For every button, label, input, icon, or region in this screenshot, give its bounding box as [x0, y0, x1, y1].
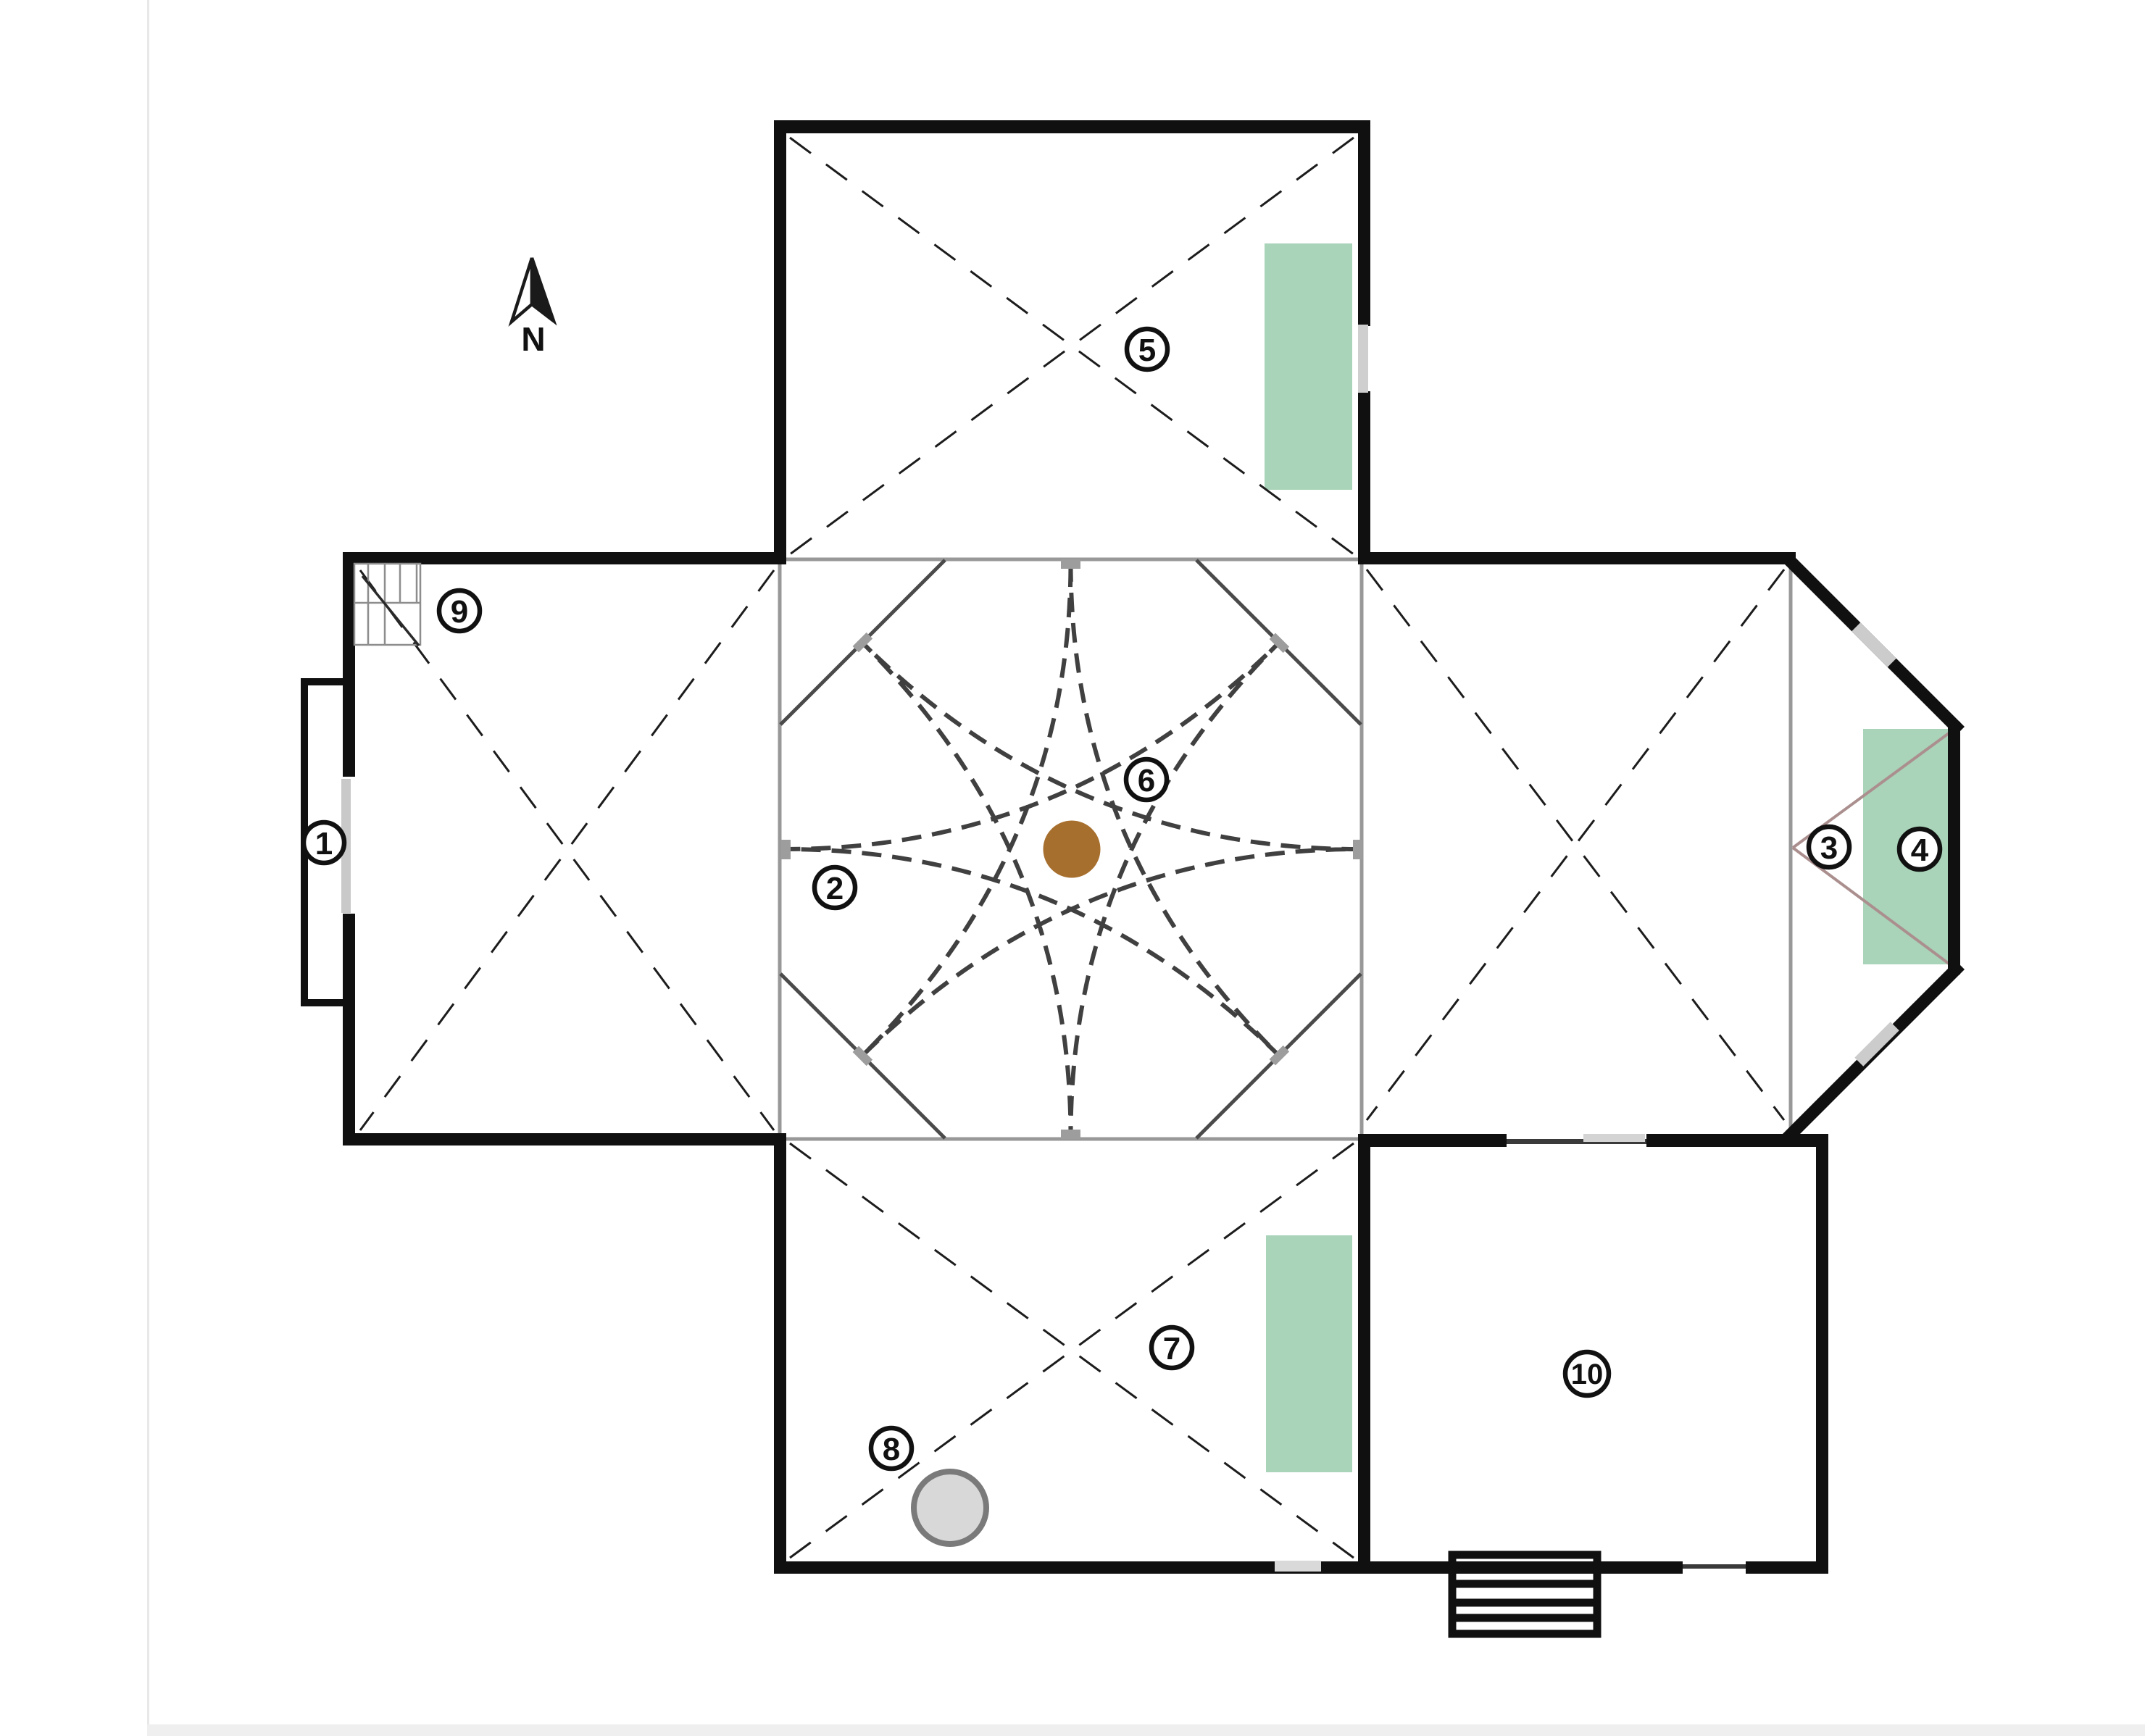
svg-text:1: 1 [315, 826, 333, 861]
svg-text:9: 9 [451, 594, 468, 630]
svg-text:8: 8 [883, 1432, 900, 1467]
svg-text:N: N [521, 320, 545, 358]
svg-text:3: 3 [1820, 830, 1838, 866]
svg-text:2: 2 [826, 871, 844, 906]
svg-text:7: 7 [1163, 1331, 1180, 1366]
svg-text:10: 10 [1571, 1359, 1604, 1390]
svg-text:6: 6 [1138, 763, 1155, 798]
svg-text:5: 5 [1138, 333, 1156, 368]
svg-text:4: 4 [1911, 832, 1929, 868]
